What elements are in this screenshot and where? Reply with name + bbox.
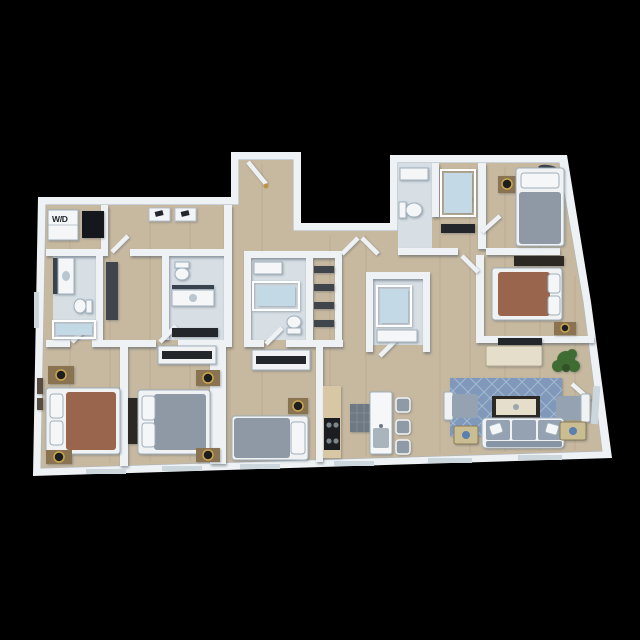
closet-nook bbox=[106, 262, 118, 320]
side-table-right bbox=[560, 422, 586, 440]
table-decor-blue bbox=[569, 427, 577, 435]
plant-foliage bbox=[552, 360, 564, 372]
side-table-left bbox=[454, 426, 478, 444]
wall bbox=[398, 248, 458, 255]
bed-duvet-gray bbox=[519, 192, 561, 244]
wall bbox=[46, 340, 70, 347]
armchair-frame bbox=[581, 394, 590, 422]
armchair-left bbox=[444, 392, 478, 420]
burner bbox=[326, 422, 331, 427]
sofa-cushion bbox=[512, 420, 536, 440]
sink bbox=[62, 271, 70, 281]
wall bbox=[92, 340, 156, 347]
toilet bbox=[175, 268, 189, 280]
wall-art bbox=[37, 378, 43, 394]
armchair-frame bbox=[444, 392, 453, 420]
lamp bbox=[203, 373, 213, 383]
bed-duvet-gray bbox=[154, 394, 206, 450]
wall bbox=[286, 340, 343, 347]
plant-foliage-dark bbox=[562, 364, 570, 372]
lamp bbox=[54, 452, 64, 462]
toilet bbox=[74, 299, 86, 313]
closet-shelf bbox=[314, 320, 334, 327]
lamp bbox=[203, 450, 213, 460]
window bbox=[518, 455, 562, 460]
pillow bbox=[50, 421, 63, 445]
closet-shelf bbox=[314, 284, 334, 291]
dish-rack bbox=[350, 404, 370, 432]
wall bbox=[335, 251, 342, 347]
wall bbox=[244, 251, 342, 258]
window bbox=[86, 469, 126, 474]
lamp bbox=[561, 324, 569, 332]
armchair-seat bbox=[556, 396, 582, 420]
bathroom-4 bbox=[377, 286, 417, 342]
wall bbox=[120, 346, 128, 466]
faucet bbox=[379, 424, 383, 428]
bathtub bbox=[257, 286, 295, 306]
toilet bbox=[406, 203, 422, 217]
window bbox=[240, 464, 280, 469]
wall bbox=[224, 205, 232, 347]
burner bbox=[333, 438, 338, 443]
pillow bbox=[50, 394, 63, 418]
hanging-clothes bbox=[256, 356, 306, 364]
wall-art bbox=[37, 398, 43, 410]
washer-dryer-label: W/D bbox=[52, 214, 68, 224]
shower bbox=[444, 173, 472, 213]
toilet-tank bbox=[86, 300, 92, 313]
toilet-tank bbox=[287, 328, 301, 334]
armchair-seat bbox=[452, 394, 478, 418]
wall bbox=[486, 248, 560, 255]
closet-shelf bbox=[314, 266, 334, 273]
wall bbox=[244, 340, 264, 347]
toilet bbox=[287, 316, 301, 328]
pillow bbox=[521, 173, 559, 188]
burner bbox=[326, 438, 331, 443]
wall bbox=[244, 251, 251, 347]
mirror bbox=[172, 285, 214, 289]
wall bbox=[96, 256, 103, 340]
floorplan-image: W/D bbox=[0, 0, 640, 640]
wall bbox=[366, 272, 430, 279]
closet-shelf bbox=[314, 302, 334, 309]
table-decor bbox=[513, 404, 519, 410]
wall-dresser bbox=[514, 256, 564, 266]
wall bbox=[130, 249, 230, 256]
bed-duvet-brown bbox=[66, 392, 116, 450]
hanging-clothes bbox=[172, 328, 218, 337]
pillow bbox=[142, 423, 155, 447]
bar-stools bbox=[396, 398, 410, 454]
burner bbox=[333, 422, 338, 427]
window bbox=[162, 466, 202, 471]
bed-duvet-gray bbox=[234, 418, 290, 458]
bar-stool bbox=[396, 398, 410, 412]
vanity bbox=[377, 330, 417, 342]
pillow bbox=[291, 422, 305, 454]
console-table bbox=[486, 346, 542, 366]
sofa bbox=[482, 418, 564, 448]
hanging-clothes bbox=[162, 351, 212, 359]
toilet-tank bbox=[399, 202, 406, 218]
lamp bbox=[56, 370, 66, 380]
window bbox=[34, 292, 39, 328]
sink bbox=[189, 294, 197, 302]
sofa-back bbox=[486, 441, 562, 447]
toilet-tank bbox=[175, 262, 189, 268]
vanity bbox=[254, 262, 282, 274]
wall bbox=[46, 249, 108, 256]
tv bbox=[498, 338, 542, 345]
bed-duvet-brown bbox=[498, 272, 550, 316]
window bbox=[334, 461, 374, 466]
wall bbox=[366, 272, 373, 352]
wall bbox=[478, 163, 486, 249]
lamp bbox=[502, 179, 512, 189]
wall bbox=[306, 258, 313, 347]
door-knob bbox=[264, 184, 269, 189]
bar-stool bbox=[396, 440, 410, 454]
plant-foliage bbox=[567, 349, 577, 359]
wall bbox=[432, 163, 439, 217]
bathtub bbox=[56, 324, 92, 335]
mirror bbox=[53, 258, 58, 294]
vanity bbox=[400, 168, 428, 180]
lamp bbox=[293, 401, 303, 411]
bar-stool bbox=[396, 420, 410, 434]
range bbox=[324, 418, 340, 450]
window bbox=[428, 458, 472, 463]
pillow bbox=[548, 274, 560, 293]
hanging-clothes bbox=[106, 262, 118, 320]
hanging-clothes bbox=[441, 224, 475, 233]
shower bbox=[380, 289, 408, 323]
pillow bbox=[142, 396, 155, 420]
plant-foliage bbox=[568, 360, 580, 372]
wall bbox=[316, 340, 323, 462]
dark-doorway bbox=[82, 211, 104, 238]
floorplan-svg: W/D bbox=[0, 0, 640, 640]
table-decor-blue bbox=[462, 431, 470, 439]
wall bbox=[423, 272, 430, 352]
pillow bbox=[548, 296, 560, 315]
island-sink bbox=[373, 428, 389, 448]
wall bbox=[162, 256, 169, 340]
